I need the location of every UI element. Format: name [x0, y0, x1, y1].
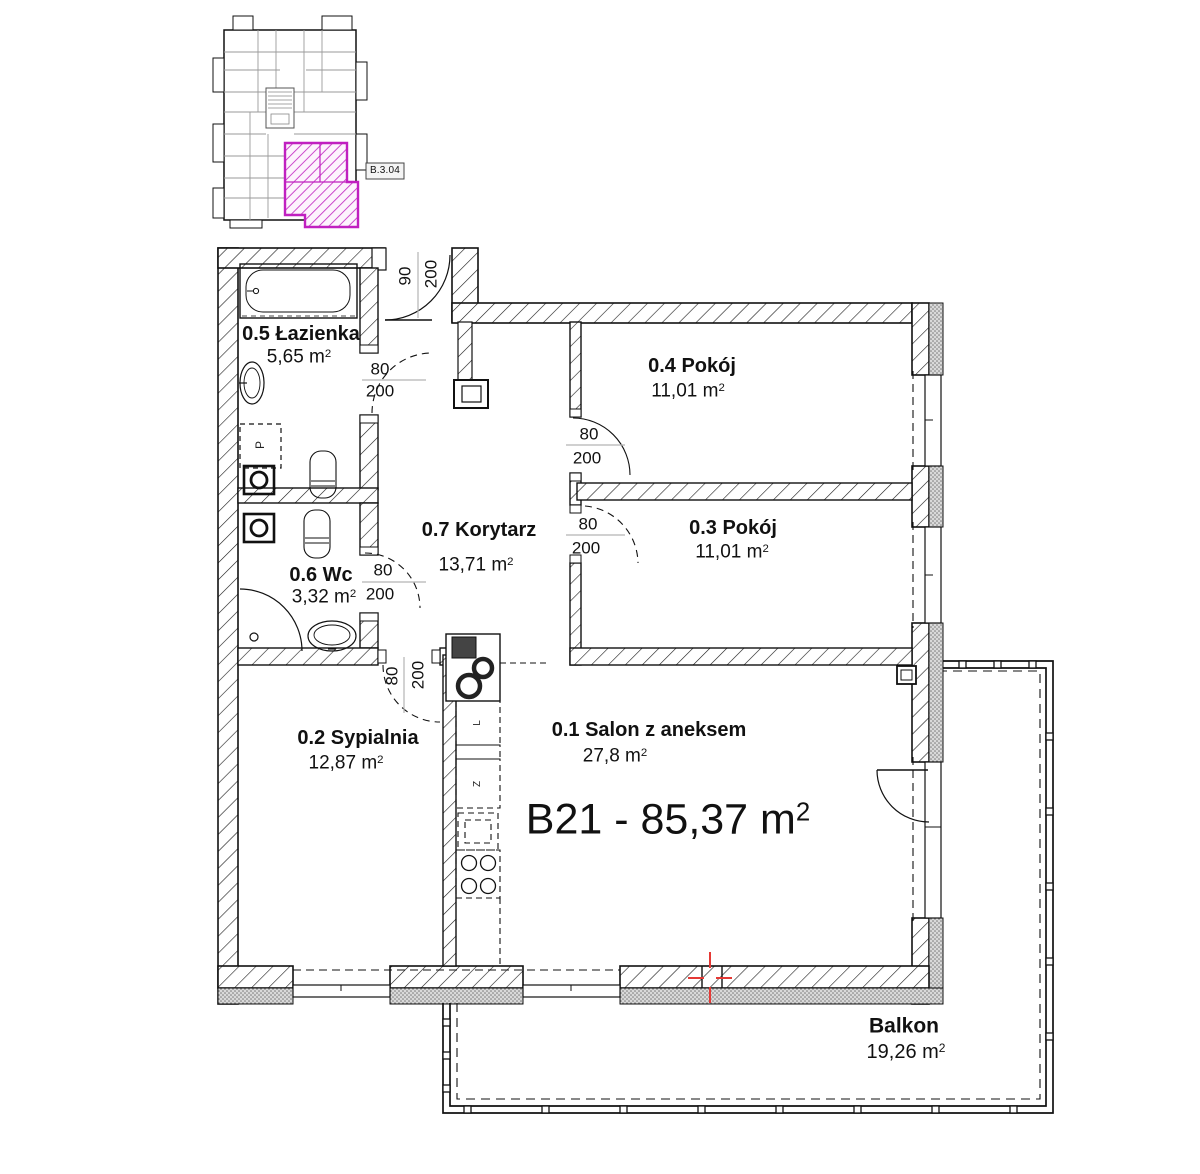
floor-plan-drawing	[0, 0, 1200, 1174]
room-label-korytarz: 0.7 Korytarz	[422, 520, 537, 540]
dim-bedroom-width: 80	[384, 667, 401, 686]
dim-bedroom-height: 200	[410, 661, 427, 689]
dim-bathroom-width: 80	[371, 361, 390, 378]
dim-wc-height: 200	[366, 586, 394, 603]
room-area-pokoj03: 11,01 m2	[695, 543, 769, 562]
dim-wc-width: 80	[374, 562, 393, 579]
room-label-wc: 0.6 Wc	[289, 565, 352, 585]
minimap-unit-label: B.3.04	[370, 166, 400, 176]
minimap-building-outline	[213, 16, 404, 228]
salon-corner-shaft	[897, 666, 916, 684]
fridge-letter: L	[473, 720, 483, 726]
minimap-highlighted-unit	[285, 143, 358, 227]
dim-entrance-width: 90	[397, 267, 414, 286]
balcony-railing	[443, 661, 1053, 1113]
room-area-pokoj04: 11,01 m2	[651, 382, 725, 401]
wc-toilet	[304, 510, 330, 558]
room-label-pokoj03: 0.3 Pokój	[689, 518, 777, 538]
room-area-korytarz: 13,71 m2	[439, 556, 514, 575]
room-label-salon: 0.1 Salon z aneksem	[552, 720, 747, 740]
dim-pokoj04-width: 80	[580, 426, 599, 443]
room-area-wc: 3,32 m2	[292, 588, 356, 607]
room-area-balkon: 19,26 m2	[867, 1042, 946, 1062]
dishwasher-letter: Z	[473, 781, 483, 787]
interior-walls	[238, 268, 912, 966]
room-area-salon: 27,8 m2	[583, 747, 647, 766]
entrance-shaft	[454, 380, 488, 408]
oven-outline	[458, 813, 498, 850]
dim-pokoj03-height: 200	[572, 540, 600, 557]
wc-sink	[308, 621, 356, 651]
floor-plan-page: B.3.04 0.5 Łazienka 5,65 m2 0.4 Pokój 11…	[0, 0, 1200, 1174]
washer-letter: P	[254, 441, 266, 449]
room-area-lazienka: 5,65 m2	[267, 348, 331, 367]
dim-pokoj04-height: 200	[573, 450, 601, 467]
dim-entrance-height: 200	[423, 260, 440, 288]
bathtub	[240, 264, 357, 318]
balcony-door	[877, 770, 929, 822]
kitchen-sink-unit	[446, 634, 500, 701]
dim-bathroom-height: 200	[366, 383, 394, 400]
plumbing-shafts	[244, 466, 274, 542]
room-label-balkon: Balkon	[869, 1016, 939, 1037]
room-area-sypialnia: 12,87 m2	[309, 754, 384, 773]
stove-burners	[462, 856, 496, 894]
room-label-sypialnia: 0.2 Sypialnia	[297, 728, 418, 748]
dim-pokoj03-width: 80	[579, 516, 598, 533]
minimap-stair-core	[266, 88, 294, 128]
unit-title: B21 - 85,37 m2	[526, 799, 810, 842]
bathroom-sink	[239, 362, 264, 404]
room-label-pokoj04: 0.4 Pokój	[648, 356, 736, 376]
room-label-lazienka: 0.5 Łazienka	[242, 324, 360, 344]
